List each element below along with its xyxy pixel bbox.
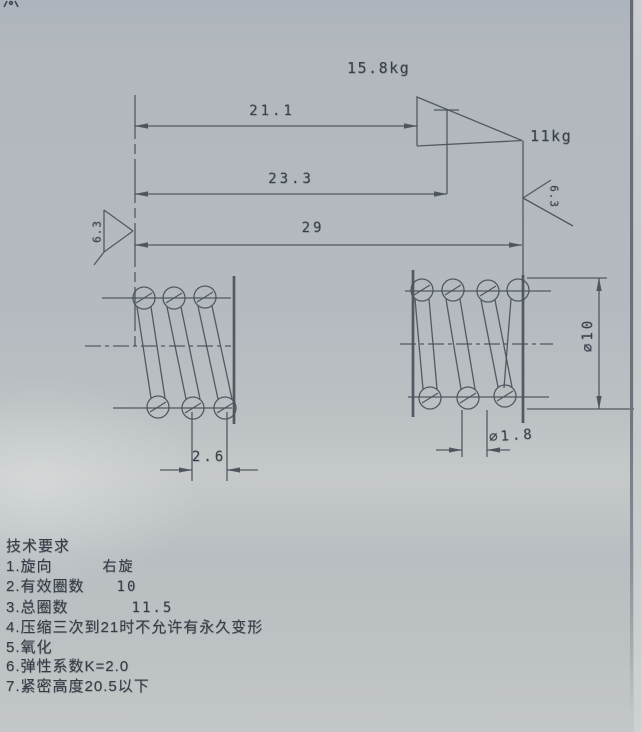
tech-item-3: 3.总圈数11.5 [6, 598, 426, 619]
scan-background-strip [634, 0, 641, 732]
dim-label-outer-diameter: ∅10 [580, 313, 596, 357]
dim-label-wire-diameter: ∅1.8 [488, 426, 535, 445]
dim-label-pitch: 2.6 [185, 449, 233, 465]
tech-item-2: 2.有效圈数10 [6, 577, 426, 598]
tech-item-6: 6.弹性系数K=2.0 [6, 657, 426, 677]
dim-label-23-3: 23.3 [259, 171, 323, 187]
tech-item-5: 5.氧化 [6, 638, 426, 658]
left-spring-view [85, 276, 236, 424]
dim-label-29: 29 [281, 220, 345, 236]
tech-item-1: 1.旋向右旋 [6, 557, 426, 578]
tech-title: 技术要求 [6, 537, 426, 557]
dimension-23-3 [135, 191, 447, 197]
tech-item-4: 4.压缩三次到21时不允许有永久变形 [6, 618, 426, 638]
load-label-upper: 15.8kg [347, 59, 410, 77]
roughness-label-right: 6.3 [548, 181, 561, 213]
corner-scan-mark [4, 1, 18, 7]
dimension-21-1 [135, 123, 417, 129]
roughness-label-left: 6.3 [91, 216, 104, 248]
scan-page-edge-line [630, 0, 633, 722]
dimension-29 [135, 242, 522, 248]
load-label-lower: 11kg [530, 127, 572, 145]
dimension-pitch-2-6 [160, 412, 258, 481]
dim-label-21-1: 21.1 [240, 103, 304, 119]
scanned-drawing-page: 15.8kg 11kg 21.1 23.3 29 2.6 ∅1.8 ∅10 6.… [0, 0, 641, 732]
technical-requirements-block: 技术要求 1.旋向右旋 2.有效圈数10 3.总圈数11.5 4.压缩三次到21… [6, 537, 426, 696]
load-wedge-triangle [417, 97, 523, 277]
right-spring-view [400, 270, 553, 423]
tech-item-7: 7.紧密高度20.5以下 [6, 677, 426, 697]
